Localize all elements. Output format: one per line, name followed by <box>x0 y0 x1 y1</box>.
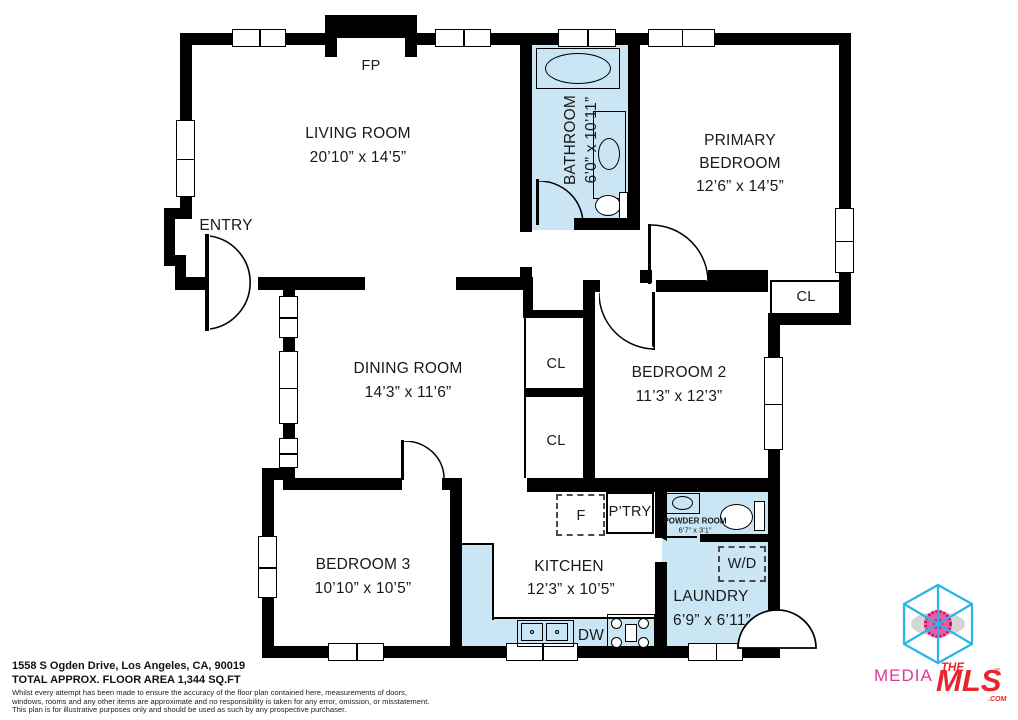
bathtub-basin <box>545 53 611 84</box>
window <box>764 357 783 450</box>
wall <box>768 313 851 325</box>
bedroom2-dims: 11’3” x 12’3” <box>636 388 723 406</box>
window <box>558 29 616 47</box>
entry-door-arc <box>209 235 259 331</box>
wall <box>450 490 462 646</box>
dishwasher-label: DW <box>578 627 604 645</box>
wall <box>583 318 595 478</box>
entry-label: ENTRY <box>199 217 252 235</box>
closet-label-2: CL <box>547 433 566 449</box>
living-room-dims: 20’10” x 14’5” <box>310 149 407 167</box>
area-line: TOTAL APPROX. FLOOR AREA 1,344 SQ.FT <box>12 674 429 688</box>
wall <box>839 33 851 325</box>
bathroom-door-arc <box>538 181 584 225</box>
bedroom2-name: BEDROOM 2 <box>632 364 727 382</box>
kitchen-name: KITCHEN <box>534 558 603 576</box>
dining-room-name: DINING ROOM <box>354 360 463 378</box>
toilet-tank <box>619 192 628 219</box>
kitchen-dims: 12’3” x 10’5” <box>527 581 615 599</box>
powder-door-arrow <box>666 536 697 538</box>
floor-plan: FP LIVING ROOM 20’10” x 14’5” ENTRY BATH… <box>0 0 1018 720</box>
bedroom3-name: BEDROOM 3 <box>316 556 411 574</box>
logo-tm-mark: ™ <box>994 668 1000 674</box>
bathroom-label: BATHROOM 6’0” x 10’11” <box>560 95 602 185</box>
burner <box>611 637 622 648</box>
pantry-label: P’TRY <box>609 504 652 520</box>
window <box>232 29 286 47</box>
wall <box>520 45 532 232</box>
window <box>279 351 298 424</box>
logo-com-text: .COM <box>988 696 1006 703</box>
wall <box>520 267 532 290</box>
wall <box>283 478 402 490</box>
window <box>435 29 491 47</box>
stove <box>607 614 655 654</box>
closet-front-line <box>524 318 526 478</box>
closet-label-1: CL <box>547 356 566 372</box>
counter-edge <box>462 543 494 545</box>
window <box>648 29 715 47</box>
wall <box>523 310 590 318</box>
burner <box>638 618 649 629</box>
stove-center <box>625 624 637 642</box>
window <box>328 643 384 661</box>
toilet-bowl <box>595 195 621 216</box>
primary-bedroom-name-1: PRIMARY <box>704 132 776 150</box>
wall <box>524 388 584 397</box>
logo-mls-text: MLS <box>936 666 1001 696</box>
burner <box>638 637 649 648</box>
window <box>258 536 277 598</box>
living-room-name: LIVING ROOM <box>305 125 411 143</box>
fireplace-opening <box>337 38 405 57</box>
window <box>176 120 195 197</box>
bedroom3-door-arc <box>404 441 445 480</box>
powder-room-dims: 6’7” x 3’1” <box>679 526 712 535</box>
fireplace-label: FP <box>362 58 381 74</box>
burner <box>611 618 622 629</box>
primary-closet-label: CL <box>797 289 816 305</box>
wall <box>655 562 667 646</box>
laundry-name: LAUNDRY <box>673 588 748 606</box>
powder-toilet-tank <box>754 501 765 531</box>
sink-drain <box>530 630 534 634</box>
powder-door-arrowhead <box>660 533 667 541</box>
bathroom-name: BATHROOM <box>560 95 581 185</box>
bedroom3-dims: 10’10” x 10’5” <box>315 580 412 598</box>
kitchen-sink <box>517 620 574 647</box>
primary-bedroom-dims: 12’6” x 14’5” <box>696 178 784 196</box>
address-line: 1558 S Ogden Drive, Los Angeles, CA, 900… <box>12 660 429 674</box>
window <box>279 296 298 338</box>
counter-edge <box>492 543 494 620</box>
powder-sink-basin <box>672 496 693 510</box>
window <box>688 643 743 661</box>
wall <box>258 277 365 290</box>
mediamls-logo: MEDIA THE MLS ™ .COM <box>870 582 1018 716</box>
laundry-dims: 6’9” x 6’11” <box>673 612 751 630</box>
footer: 1558 S Ogden Drive, Los Angeles, CA, 900… <box>12 660 429 715</box>
wall <box>523 290 533 312</box>
sink-drain <box>555 630 559 634</box>
primary-door-arc <box>650 224 710 284</box>
wall <box>175 277 208 290</box>
dining-room-dims: 14’3” x 11’6” <box>365 384 452 402</box>
wall <box>628 45 640 230</box>
window <box>835 208 854 273</box>
bathroom-dims: 6’0” x 10’11” <box>581 95 602 185</box>
window <box>279 438 298 468</box>
cube-eye-icon <box>898 582 978 666</box>
wall <box>442 478 462 490</box>
wall <box>527 478 778 492</box>
bedroom2-door-arc <box>599 292 656 350</box>
fridge-label: F <box>576 508 585 524</box>
primary-bedroom-name-2: BEDROOM <box>699 155 781 173</box>
wall <box>700 534 768 542</box>
powder-room-name: POWDER ROOM <box>663 517 726 526</box>
washer-dryer-label: W/D <box>728 556 757 572</box>
disclaimer-line: This plan is for illustrative purposes o… <box>12 706 429 715</box>
logo-media-text: MEDIA <box>874 666 933 686</box>
